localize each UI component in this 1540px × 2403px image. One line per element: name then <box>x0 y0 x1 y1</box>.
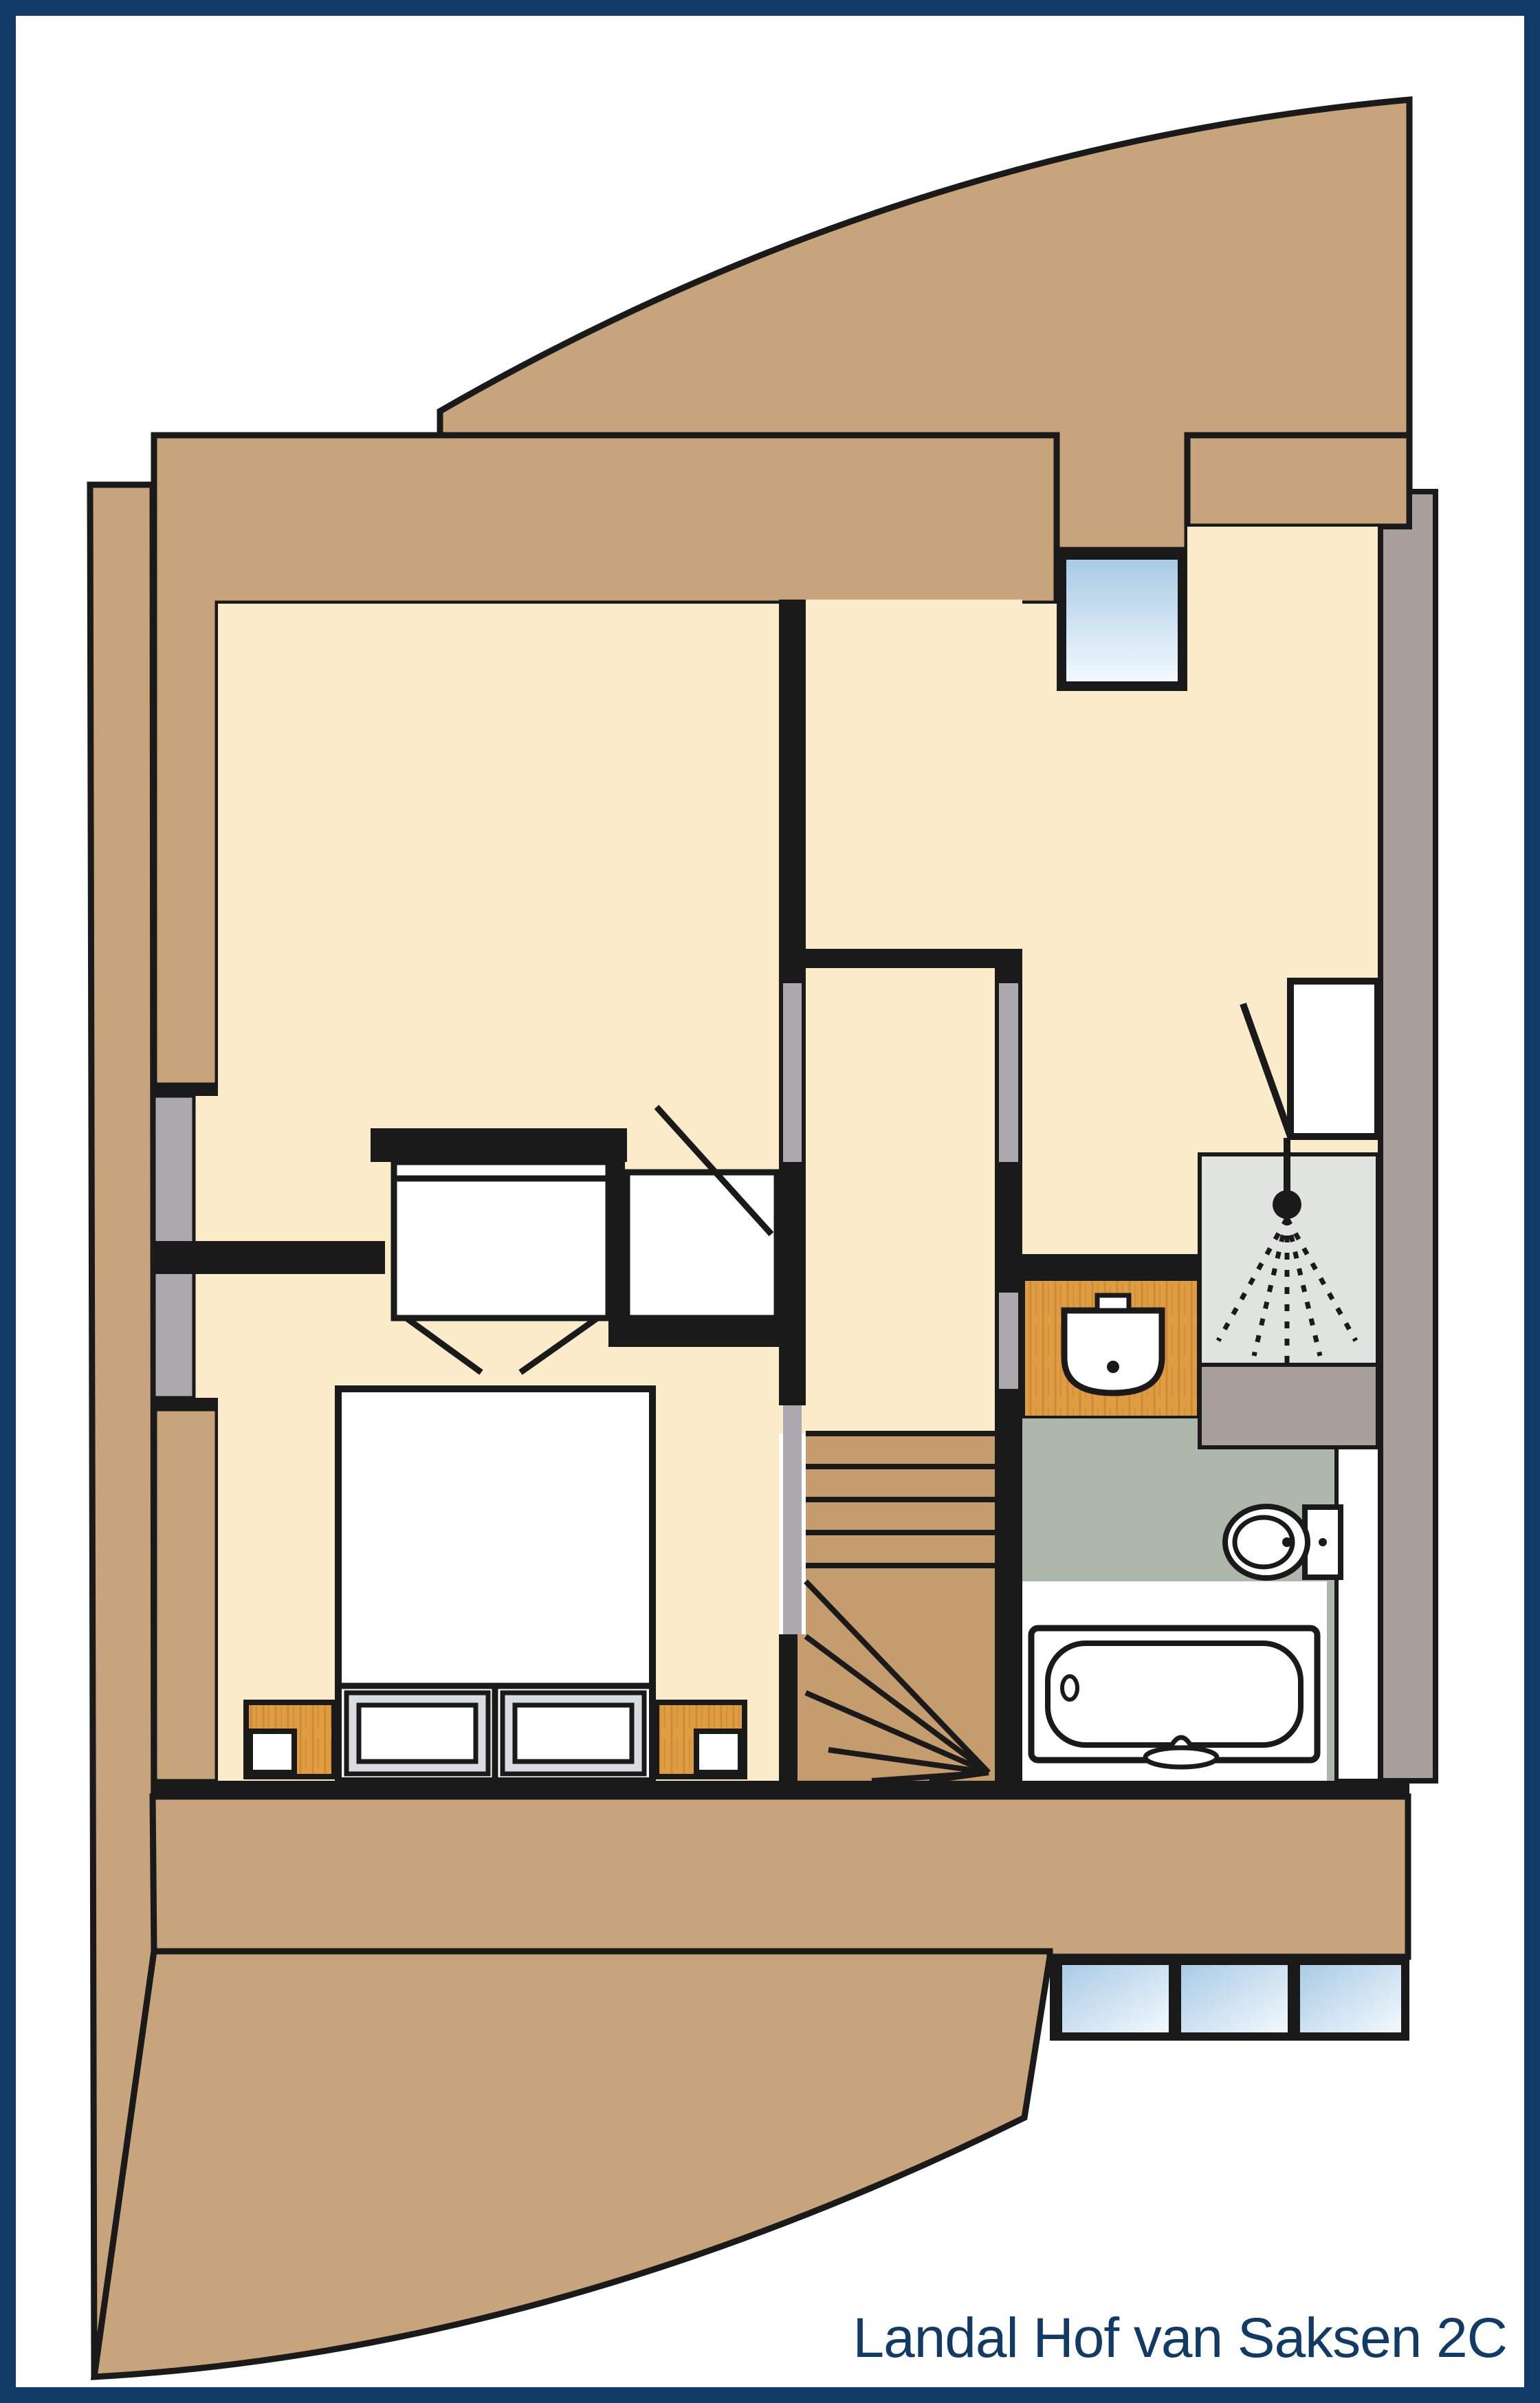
plan-title: Landal Hof van Saksen 2C <box>852 2307 1507 2369</box>
wardrobe-bifold <box>394 1162 608 1318</box>
wall-under-door <box>625 1318 806 1347</box>
roof-band-bottom <box>153 1797 1408 1957</box>
door-opening-landing-right <box>999 983 1018 1162</box>
door-opening-landing-left <box>783 983 802 1162</box>
staircase-group <box>797 1434 995 1782</box>
bathroom-right-strip <box>1336 1447 1380 1781</box>
toilet-button <box>1319 1538 1327 1546</box>
window-row-pane-2 <box>1181 1965 1288 2032</box>
wall-shaft-left-lower <box>779 1634 797 1798</box>
dormer-window-top-glass <box>1066 560 1178 681</box>
washbasin-faucet <box>1097 1295 1129 1310</box>
wall-bathroom-top <box>1022 1254 1200 1278</box>
washbasin-drain <box>1107 1361 1119 1373</box>
shower-head <box>1273 1190 1301 1219</box>
window-row-pane-1 <box>1062 1965 1169 2032</box>
knee-wall-left-lower <box>154 1408 218 1782</box>
pillow-right-inner <box>515 1705 632 1762</box>
wall-shaft-top <box>779 949 1022 968</box>
roof-band-top-right <box>1187 435 1409 527</box>
exterior-wall-right <box>1380 492 1435 1781</box>
lamp-left <box>250 1731 294 1773</box>
bathtub-faucet-plate <box>1145 1748 1217 1767</box>
lamp-right <box>696 1731 740 1773</box>
window-row-pane-3 <box>1300 1965 1401 2032</box>
toilet-drain <box>1282 1537 1292 1547</box>
door-opening-bathroom <box>999 1293 1018 1389</box>
room-landing-floor <box>779 600 1022 1434</box>
washbasin <box>1064 1310 1162 1393</box>
wall-wardrobe-top <box>371 1128 627 1162</box>
shower-ledge <box>1200 1365 1378 1447</box>
floorplan-canvas: Landal Hof van Saksen 2C <box>0 0 1540 2403</box>
wall-stub-bedroom-divider <box>153 1241 385 1274</box>
interior-door-leaf <box>627 1172 777 1318</box>
pillow-left-inner <box>359 1705 476 1762</box>
door-opening-bedroom-main <box>783 1405 802 1634</box>
shower-screen <box>1290 981 1378 1137</box>
